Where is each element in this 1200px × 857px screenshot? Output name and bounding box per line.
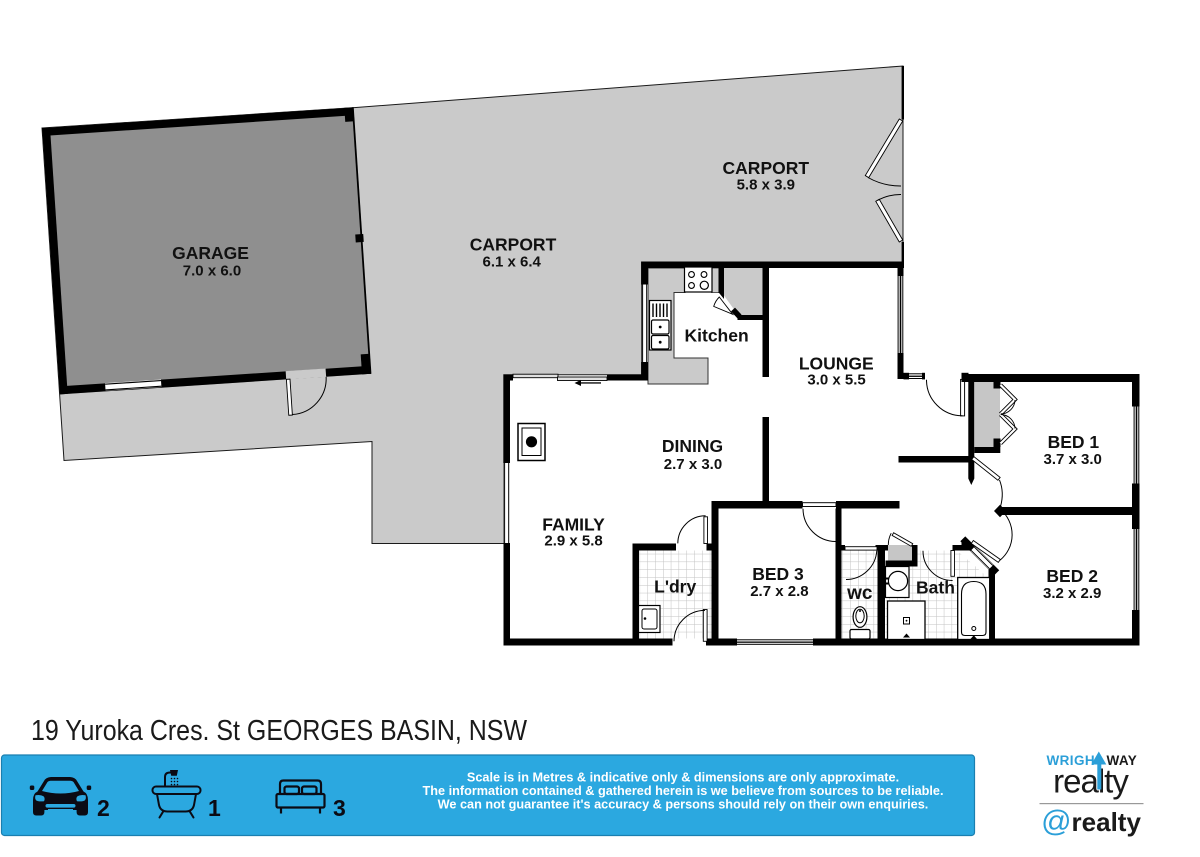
svg-text:L'dry: L'dry [654,577,696,597]
svg-text:BED 2: BED 2 [1046,566,1098,586]
svg-text:Bath: Bath [916,577,955,597]
svg-text:Scale is in Metres & indicativ: Scale is in Metres & indicative only & d… [467,771,899,785]
svg-text:19 Yuroka Cres. St GEORGES BAS: 19 Yuroka Cres. St GEORGES BASIN, NSW [31,715,528,747]
svg-text:3.0 x 5.5: 3.0 x 5.5 [807,372,865,389]
svg-text:1: 1 [208,795,221,821]
svg-text:6.1 x 6.4: 6.1 x 6.4 [483,254,542,271]
svg-text:2: 2 [97,795,110,821]
svg-text:BED 1: BED 1 [1048,432,1100,452]
svg-text:5.8 x 3.9: 5.8 x 3.9 [737,177,795,194]
svg-text:2.7 x 3.0: 2.7 x 3.0 [664,456,722,473]
svg-text:3: 3 [333,795,346,821]
svg-text:3.7 x 3.0: 3.7 x 3.0 [1044,451,1102,468]
svg-text:BED 3: BED 3 [752,564,804,584]
svg-text:wc: wc [846,583,873,604]
svg-text:2.9 x 5.8: 2.9 x 5.8 [544,532,602,549]
svg-text:2.7 x 2.8: 2.7 x 2.8 [750,583,808,600]
svg-text:CARPORT: CARPORT [470,235,557,255]
svg-text:GARAGE: GARAGE [172,243,249,263]
svg-text:realty: realty [1053,763,1129,800]
svg-text:7.0 x 6.0: 7.0 x 6.0 [183,263,241,280]
svg-text:Kitchen: Kitchen [685,326,749,346]
svg-text:CARPORT: CARPORT [723,158,810,178]
svg-text:3.2 x 2.9: 3.2 x 2.9 [1043,585,1101,602]
svg-text:We can not guarantee it's accu: We can not guarantee it's accuracy & per… [438,798,929,812]
svg-text:DINING: DINING [662,436,723,456]
svg-text:@realty: @realty [1041,805,1141,838]
svg-text:The information contained & ga: The information contained & gathered her… [422,784,943,798]
